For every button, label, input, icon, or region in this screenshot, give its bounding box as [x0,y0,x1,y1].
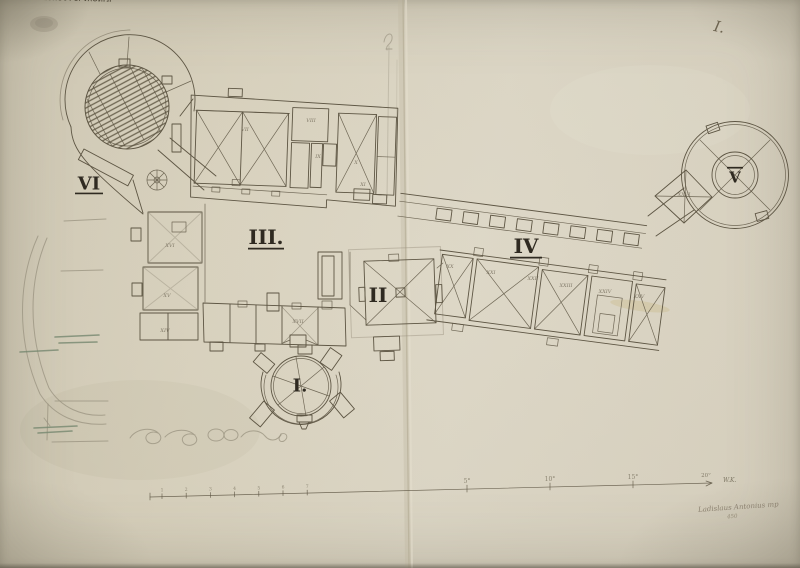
room-label-XIV: XIV [159,328,171,334]
minor-tick-label: 6 [282,485,285,491]
room-label-XX: XX [445,264,454,270]
plan-sheet: HRVATSKOJ I SLAVONIJI I. [0,0,800,568]
spiral-stair [147,170,167,190]
section-label-III: III. [248,225,283,249]
room-label-XVII: XVII [291,319,304,325]
scale-unit-label: W.K. [723,477,737,484]
wing-v-connection [648,170,712,236]
room-label-XXIII: XXIII [558,283,573,289]
floor-plan-drawing: 12345675°10°15°20°W.K. I.IIIII.IVVVIVIIV… [0,0,800,568]
stair-north-wing [310,143,323,187]
room-label-XVI: XVI [164,243,175,249]
scale-end-label: 20° [701,473,711,479]
room-label-XV: XV [162,293,172,299]
stair-east [172,124,181,152]
minor-tick-label: 1 [161,488,164,494]
west-wing [131,204,205,340]
section-label-VI: VI [77,173,100,194]
major-tick-label: 10° [545,476,556,483]
wall-ii-to-wing [437,263,443,268]
room-label-IX: IX [314,154,321,160]
north-arrow [384,34,397,198]
section-label-II: II [369,283,388,307]
room-label-VIII: VIII [306,118,317,124]
paper-fold-line [401,0,412,568]
scale-bar: 12345675°10°15°20°W.K. [150,473,737,500]
minor-tick-label: 4 [233,486,236,492]
room-label-X: X [353,160,358,166]
tower-ii [348,247,444,362]
section-label-IV: IV [514,234,539,258]
room-label-XI: XI [359,182,367,188]
minor-tick-label: 2 [185,487,188,493]
signature-note: 450 [727,514,738,521]
room-label-XXV: XXV [633,294,646,300]
minor-tick-label: 5 [257,485,260,491]
section-label-I: I. [293,375,308,396]
room-label-XXI: XXI [485,270,496,276]
minor-tick-label: 7 [306,484,309,490]
room-label-XXVI: XXVI [677,192,692,198]
minor-tick-label: 3 [209,486,212,492]
major-tick-label: 5° [464,478,471,485]
room-label-VII: VII [241,127,250,133]
south-wing [203,252,366,354]
major-tick-label: 15° [628,474,639,481]
room-label-XXIV: XXIV [598,289,613,295]
north-wing [187,87,399,210]
section-label-V: V [728,168,741,186]
room-label-XXII: XXII [526,276,539,282]
